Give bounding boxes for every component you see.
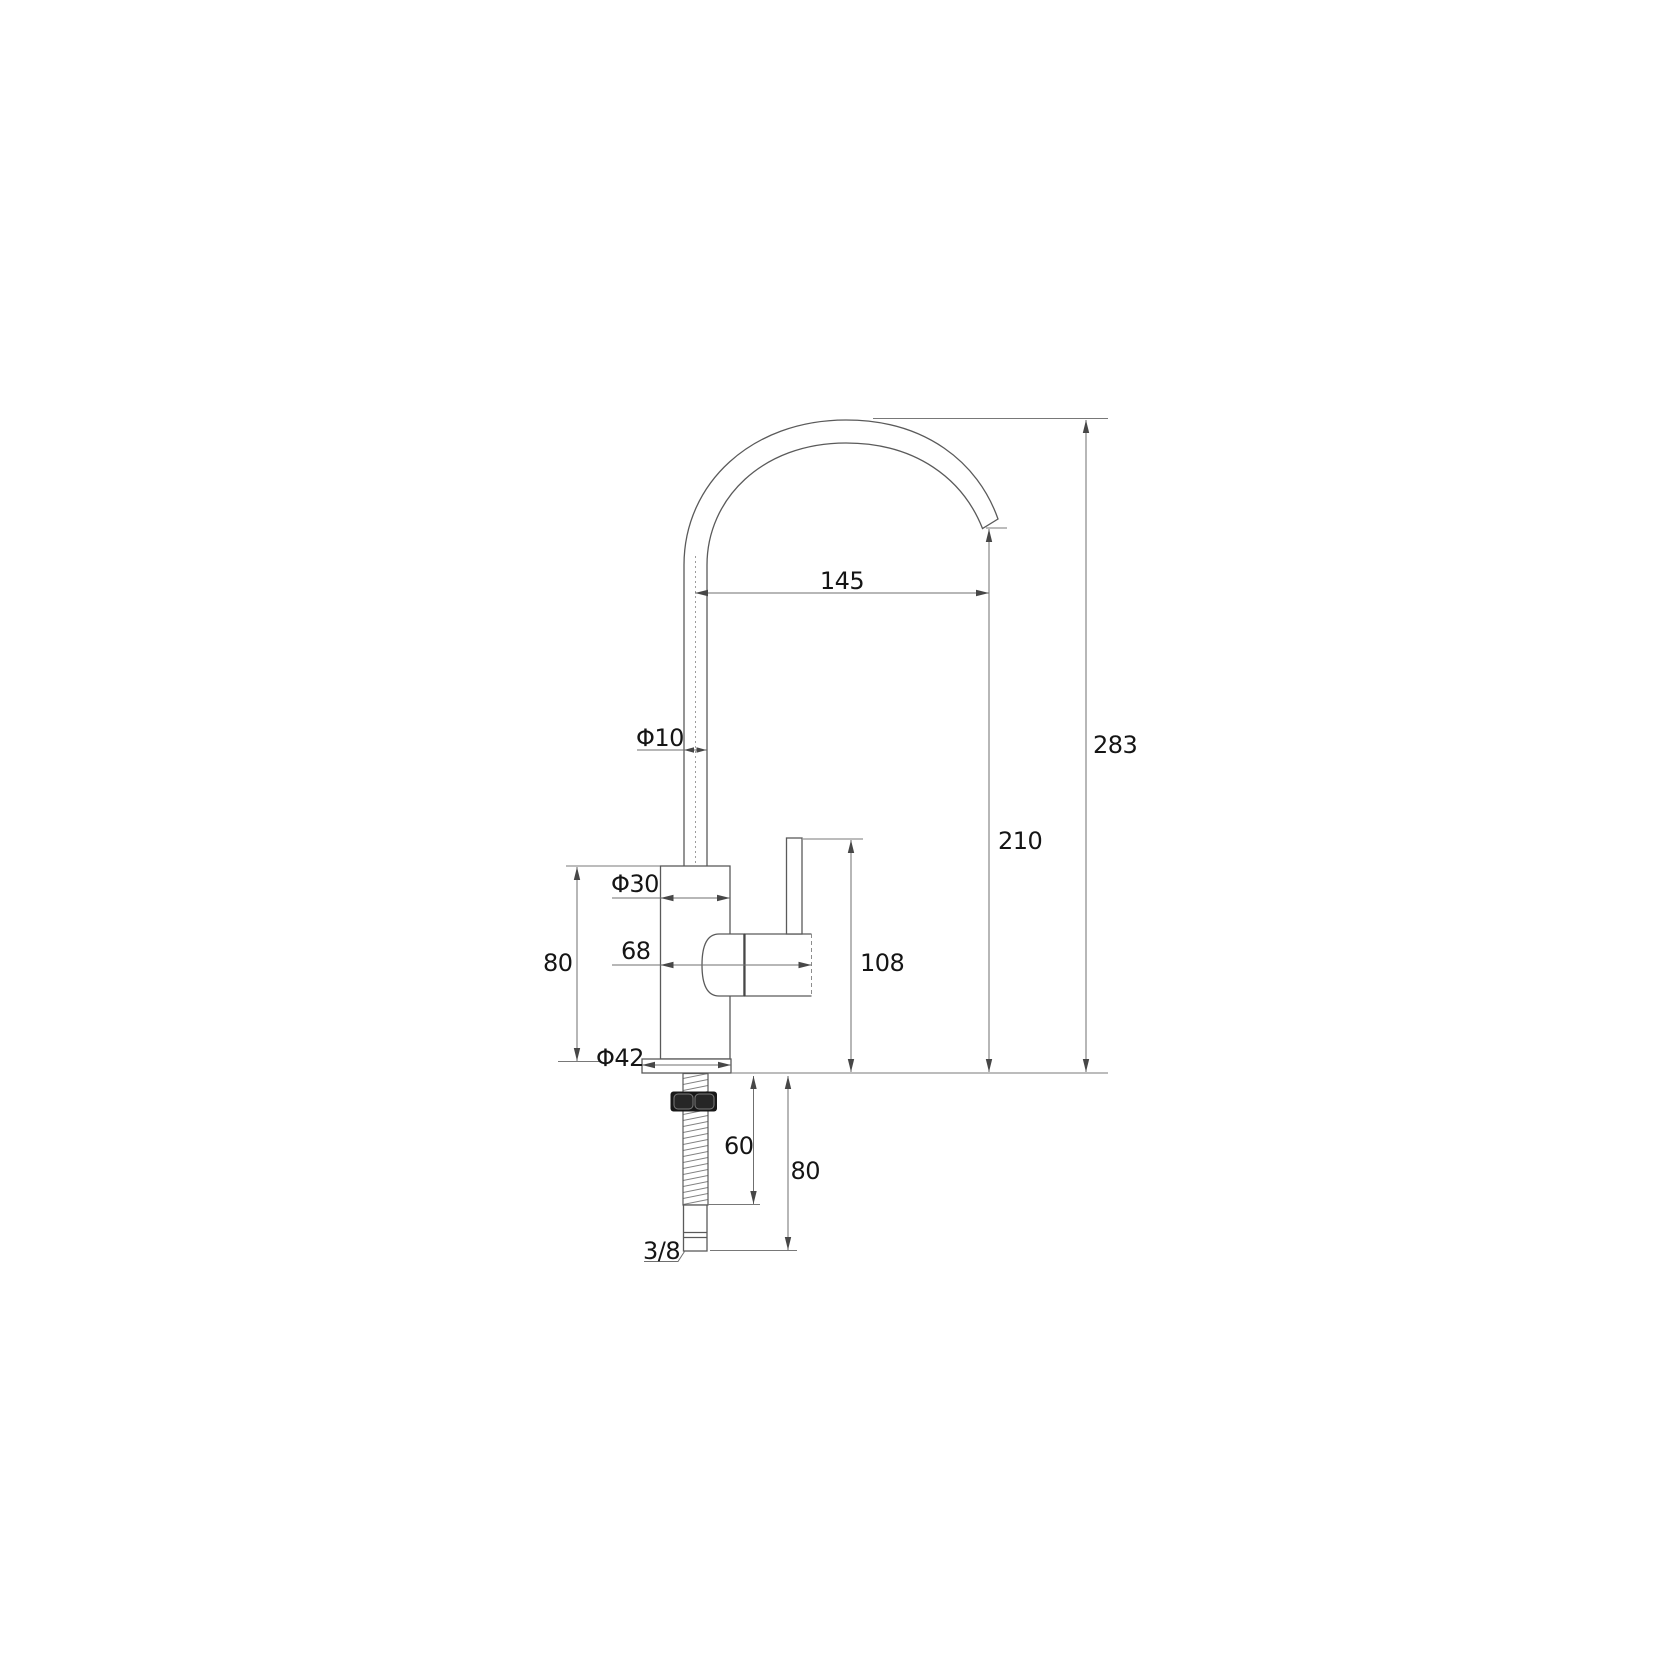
- arrowhead: [697, 747, 707, 753]
- arrowhead: [750, 1191, 756, 1204]
- dim-inlet-connection: 3/8: [643, 1237, 685, 1265]
- arrowhead: [799, 962, 812, 968]
- dim-label-outlet-height: 210: [998, 827, 1042, 855]
- spout-tube: [684, 420, 998, 866]
- dim-handle-top-height: 108: [848, 840, 905, 1072]
- dim-label-spout-reach: 145: [820, 567, 864, 595]
- arrowhead: [976, 590, 989, 596]
- arrowhead: [986, 1059, 992, 1072]
- dim-overall-height: 283: [1083, 420, 1138, 1072]
- arrowhead: [785, 1076, 791, 1089]
- arrowhead: [695, 590, 708, 596]
- arrowhead: [750, 1076, 756, 1089]
- arrowhead: [684, 747, 694, 753]
- dim-label-spout-tube-diameter: Φ10: [636, 724, 684, 752]
- dim-body-height: 80: [543, 867, 580, 1061]
- arrowhead: [1083, 1059, 1089, 1072]
- dim-label-body-span: 68: [621, 937, 651, 965]
- arrowhead: [986, 529, 992, 542]
- base-flange: [642, 1059, 731, 1073]
- dim-label-inlet-connection: 3/8: [643, 1237, 680, 1265]
- inlet-pipe: [684, 1205, 708, 1251]
- dim-spout-tube-diameter: Φ10: [636, 724, 707, 753]
- dim-label-shank-thread-length: 60: [724, 1132, 754, 1160]
- dim-label-shank-total-length: 80: [791, 1157, 821, 1185]
- arrowhead: [848, 840, 854, 853]
- dim-spout-reach: 145: [695, 567, 989, 596]
- dim-label-overall-height: 283: [1093, 731, 1137, 759]
- dim-label-base-flange-diameter: Φ42: [596, 1044, 644, 1072]
- arrowhead: [1083, 420, 1089, 433]
- faucet-technical-drawing: 145 Φ10 Φ30 68 80: [0, 0, 1676, 1676]
- arrowhead: [785, 1237, 791, 1250]
- dim-label-body-height: 80: [543, 949, 573, 977]
- arrowhead: [574, 1048, 580, 1061]
- handle-lever: [787, 838, 803, 934]
- dim-shank-thread-length: 60: [724, 1076, 757, 1204]
- dim-label-body-diameter: Φ30: [611, 870, 659, 898]
- dim-shank-total-length: 80: [785, 1076, 820, 1250]
- arrowhead: [848, 1059, 854, 1072]
- dim-label-handle-top-height: 108: [860, 949, 904, 977]
- dim-outlet-height: 210: [986, 529, 1043, 1072]
- arrowhead: [574, 867, 580, 880]
- shank-nut: [671, 1092, 718, 1112]
